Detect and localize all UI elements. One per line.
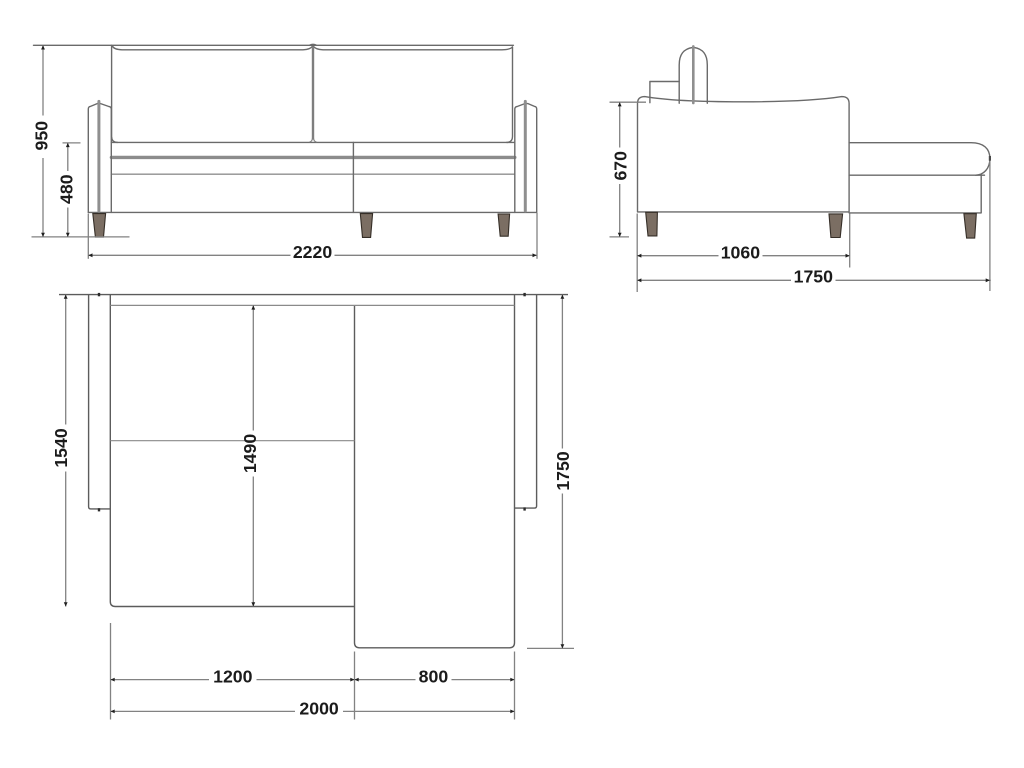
svg-text:2000: 2000 (299, 698, 339, 718)
svg-text:1750: 1750 (794, 266, 834, 286)
svg-text:1540: 1540 (51, 428, 71, 468)
svg-text:1750: 1750 (553, 451, 573, 491)
svg-text:950: 950 (32, 121, 52, 151)
svg-text:800: 800 (419, 667, 449, 687)
svg-text:1490: 1490 (240, 434, 260, 474)
svg-text:2220: 2220 (293, 242, 333, 262)
svg-text:670: 670 (611, 151, 631, 181)
svg-text:1200: 1200 (213, 667, 253, 687)
svg-text:480: 480 (56, 174, 76, 204)
svg-text:1060: 1060 (721, 242, 761, 262)
